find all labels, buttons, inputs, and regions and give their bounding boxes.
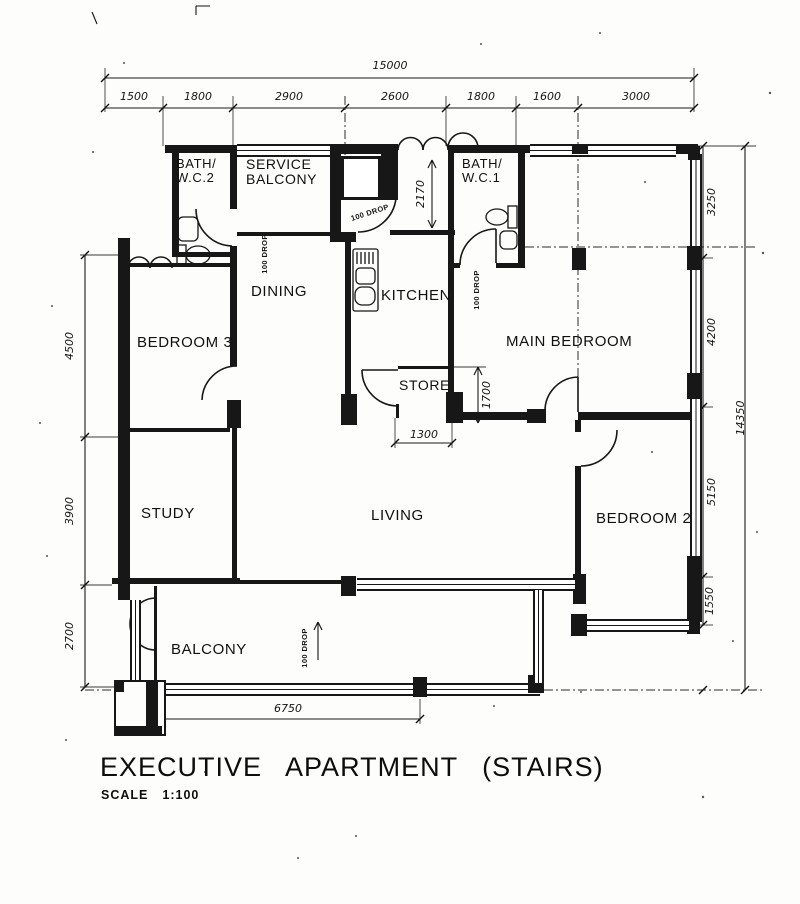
dim-left-seg-2: 3900 xyxy=(64,491,76,531)
window xyxy=(530,144,676,157)
dim-top-seg-4: 2600 xyxy=(370,91,420,103)
column xyxy=(571,614,587,636)
wall-segment xyxy=(230,152,237,209)
wall-segment xyxy=(575,420,581,432)
lift-shaft xyxy=(341,156,381,200)
dim-top-seg-2: 1800 xyxy=(173,91,223,103)
drawing-scale: SCALE1:100 xyxy=(101,788,199,802)
room-label-balcony: BALCONY xyxy=(171,642,247,658)
dim-right-total: 14350 xyxy=(735,396,747,440)
arrowheads xyxy=(92,6,482,660)
window xyxy=(533,590,544,683)
dim-left-seg-3: 2700 xyxy=(64,616,76,656)
wall-segment xyxy=(237,232,330,236)
annotation-drop-service: 100 DROP xyxy=(261,229,269,279)
dim-top-seg-5: 1800 xyxy=(456,91,506,103)
dim-right-seg-3: 5150 xyxy=(706,472,718,512)
room-label-store: STORE xyxy=(399,377,450,393)
sink-icon xyxy=(356,268,375,284)
scale-value: 1:100 xyxy=(162,788,199,802)
window xyxy=(155,683,540,696)
room-label-study: STUDY xyxy=(141,506,195,522)
wall-segment xyxy=(390,230,455,235)
annotation-drop-bath1: 100 DROP xyxy=(473,265,481,315)
wall-segment xyxy=(112,578,240,584)
room-label-bedroom-2: BEDROOM 2 xyxy=(596,511,691,527)
wall-segment xyxy=(172,252,237,257)
dim-entry-depth: 2170 xyxy=(415,172,427,216)
column xyxy=(687,373,700,399)
column xyxy=(413,677,427,697)
column xyxy=(227,400,241,428)
wall-segment xyxy=(448,145,530,153)
basin-icon xyxy=(500,231,517,249)
dim-top-total: 15000 xyxy=(365,60,415,72)
wall-segment xyxy=(448,153,454,268)
dim-top-seg-7: 3000 xyxy=(611,91,661,103)
window xyxy=(585,619,689,632)
room-label-service-balcony: SERVICE BALCONY xyxy=(246,157,317,187)
dim-bottom-width: 6750 xyxy=(263,703,313,715)
wall-segment xyxy=(575,466,581,578)
column xyxy=(688,146,700,160)
cistern-icon xyxy=(508,206,517,228)
dim-top-seg-1: 1500 xyxy=(109,91,159,103)
basin-icon xyxy=(178,217,198,241)
column xyxy=(687,556,700,600)
room-label-bedroom-3: BEDROOM 3 xyxy=(137,335,232,351)
column xyxy=(527,409,546,423)
room-label-bath-wc2: BATH/ W.C.2 xyxy=(176,157,216,184)
drawing-title: EXECUTIVE APARTMENT (STAIRS) xyxy=(100,752,604,783)
dim-store-depth: 1700 xyxy=(481,373,493,417)
dim-store-width: 1300 xyxy=(399,429,449,441)
annotation-drop-balcony: 100 DROP xyxy=(301,623,309,673)
column xyxy=(341,394,357,425)
dim-right-seg-4: 1550 xyxy=(704,581,716,621)
window xyxy=(130,600,141,686)
scale-label: SCALE xyxy=(101,788,148,802)
wall-segment xyxy=(130,428,230,432)
floor-plan: BATH/ W.C.2 SERVICE BALCONY BATH/ W.C.1 … xyxy=(0,0,800,904)
dim-right-seg-1: 3250 xyxy=(706,182,718,222)
wall-segment xyxy=(496,263,525,268)
wall-segment xyxy=(154,586,157,684)
column xyxy=(572,248,586,270)
wall-segment xyxy=(130,263,230,267)
stove-icon xyxy=(355,287,375,305)
wall-segment xyxy=(330,154,341,242)
column xyxy=(687,246,700,270)
wall-segment xyxy=(330,144,398,154)
external-step xyxy=(114,680,124,692)
wall-segment xyxy=(381,154,398,200)
wall-segment xyxy=(518,153,525,268)
wall-segment xyxy=(118,238,130,600)
wall-segment xyxy=(396,404,399,418)
dim-top-seg-6: 1600 xyxy=(522,91,572,103)
column xyxy=(341,576,356,596)
external-step xyxy=(114,726,162,734)
column xyxy=(572,144,588,154)
wall-segment xyxy=(398,366,450,369)
dim-left-seg-1: 4500 xyxy=(64,326,76,366)
dim-top-seg-3: 2900 xyxy=(264,91,314,103)
toilet-icon xyxy=(486,209,508,225)
room-label-living: LIVING xyxy=(371,508,424,524)
external-step xyxy=(146,680,158,732)
wall-segment xyxy=(232,428,237,580)
dim-right-seg-2: 4200 xyxy=(706,312,718,352)
room-label-bath-wc1: BATH/ W.C.1 xyxy=(462,157,502,184)
wall-segment xyxy=(237,580,343,584)
room-label-dining: DINING xyxy=(251,284,307,300)
room-label-kitchen: KITCHEN xyxy=(381,288,451,304)
room-label-main-bedroom: MAIN BEDROOM xyxy=(506,334,632,350)
wall-segment xyxy=(330,232,356,242)
wall-segment xyxy=(578,412,690,420)
